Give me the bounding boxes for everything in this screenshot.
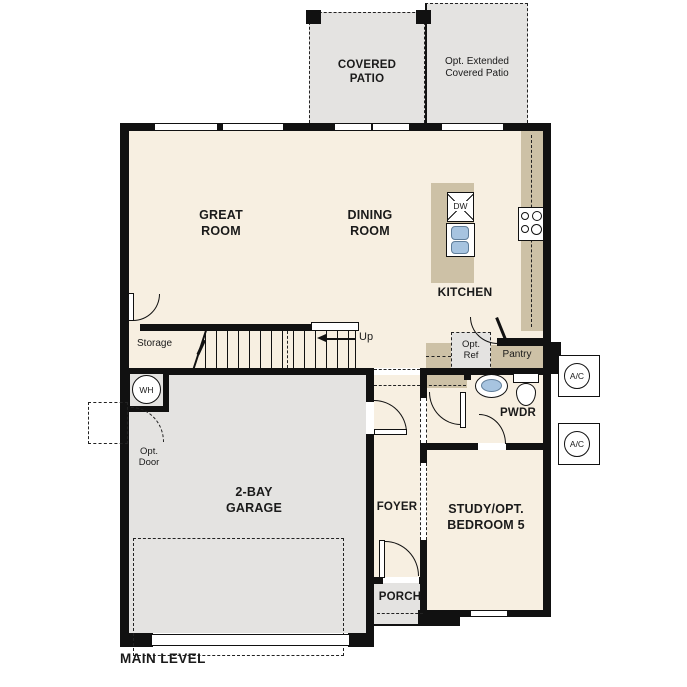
wall-stub	[464, 368, 471, 380]
opt-door-stoop	[88, 402, 128, 444]
toilet-tank	[513, 373, 539, 383]
porch-step-line	[377, 613, 423, 614]
garage-right-wall	[366, 434, 374, 647]
great-room-label: GREAT ROOM	[188, 208, 254, 239]
dishwasher-label: DW	[451, 201, 470, 211]
stair-treads	[205, 331, 356, 368]
wall-corner	[418, 610, 460, 626]
counter-centerline	[426, 356, 451, 357]
cooktop	[518, 207, 545, 241]
ac-label: A/C	[564, 363, 590, 389]
garage-bottom-wall	[348, 633, 374, 647]
garage-right-wall	[366, 368, 374, 402]
kitchen-sink	[446, 223, 475, 257]
dishwasher: DW	[447, 192, 474, 222]
ac-unit: A/C	[558, 355, 600, 397]
window	[222, 123, 284, 131]
opt-door-label: Opt. Door	[130, 447, 168, 469]
garage-door	[151, 634, 350, 646]
storage-label: Storage	[137, 338, 183, 350]
pantry-label: Pantry	[492, 349, 542, 361]
study-top-wall	[506, 443, 551, 450]
counter-centerline	[424, 385, 466, 386]
porch-label: PORCH	[376, 590, 424, 604]
floor-plan: COVERED PATIO Opt. Extended Covered Pati…	[0, 0, 687, 687]
water-heater: WH	[132, 375, 161, 404]
pwdr-label: PWDR	[492, 406, 544, 420]
up-arrow-head	[317, 334, 326, 342]
stairs-top-wall	[140, 324, 312, 331]
window	[470, 610, 508, 617]
patio-post	[306, 10, 321, 24]
ac-label: A/C	[564, 431, 590, 457]
covered-patio-label: COVERED PATIO	[322, 58, 412, 87]
plan-title: MAIN LEVEL	[120, 651, 260, 668]
door-leaf	[374, 429, 407, 435]
window	[441, 123, 504, 131]
kitchen-label: KITCHEN	[429, 285, 501, 300]
stairs-up-label: Up	[359, 331, 373, 343]
study-label: STUDY/OPT. BEDROOM 5	[430, 502, 542, 533]
stair-railing	[311, 322, 359, 331]
foyer-label: FOYER	[373, 500, 421, 514]
foyer-right-wall	[420, 368, 427, 398]
up-arrow-line	[326, 338, 356, 340]
opening-dashed-line	[374, 369, 420, 370]
study-top-wall	[420, 443, 478, 450]
dining-room-label: DINING ROOM	[338, 208, 402, 239]
opt-ref-label: Opt. Ref	[456, 340, 486, 362]
sliding-door-divider	[371, 124, 373, 130]
foyer-right-wall-dashed	[420, 398, 427, 443]
ac-unit: A/C	[558, 423, 600, 465]
stair-overhead-line	[287, 331, 288, 368]
patio-post	[416, 10, 431, 24]
opening-dashed-line	[374, 385, 420, 386]
study-left-wall-dashed	[420, 463, 427, 540]
window	[154, 123, 218, 131]
pwdr-sink	[475, 374, 508, 398]
extended-patio-label: Opt. Extended Covered Patio	[431, 56, 523, 80]
front-wall	[366, 577, 383, 584]
garage-label: 2-BAY GARAGE	[213, 485, 295, 516]
hall-counter	[422, 375, 467, 388]
